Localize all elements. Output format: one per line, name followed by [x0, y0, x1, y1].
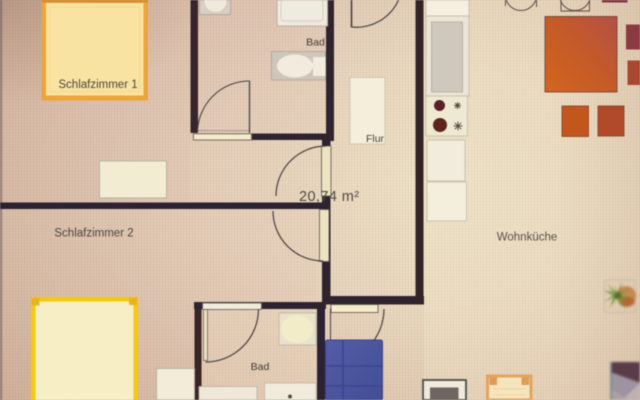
- svg-text:Bad: Bad: [306, 37, 325, 49]
- svg-text:20,74 m²: 20,74 m²: [299, 189, 359, 205]
- svg-text:Bad: Bad: [251, 361, 270, 373]
- svg-text:Schlafzimmer 2: Schlafzimmer 2: [54, 228, 133, 240]
- svg-text:Schlafzimmer 1: Schlafzimmer 1: [58, 79, 137, 91]
- svg-text:Flur: Flur: [366, 133, 385, 145]
- svg-text:Wohnküche: Wohnküche: [497, 232, 558, 244]
